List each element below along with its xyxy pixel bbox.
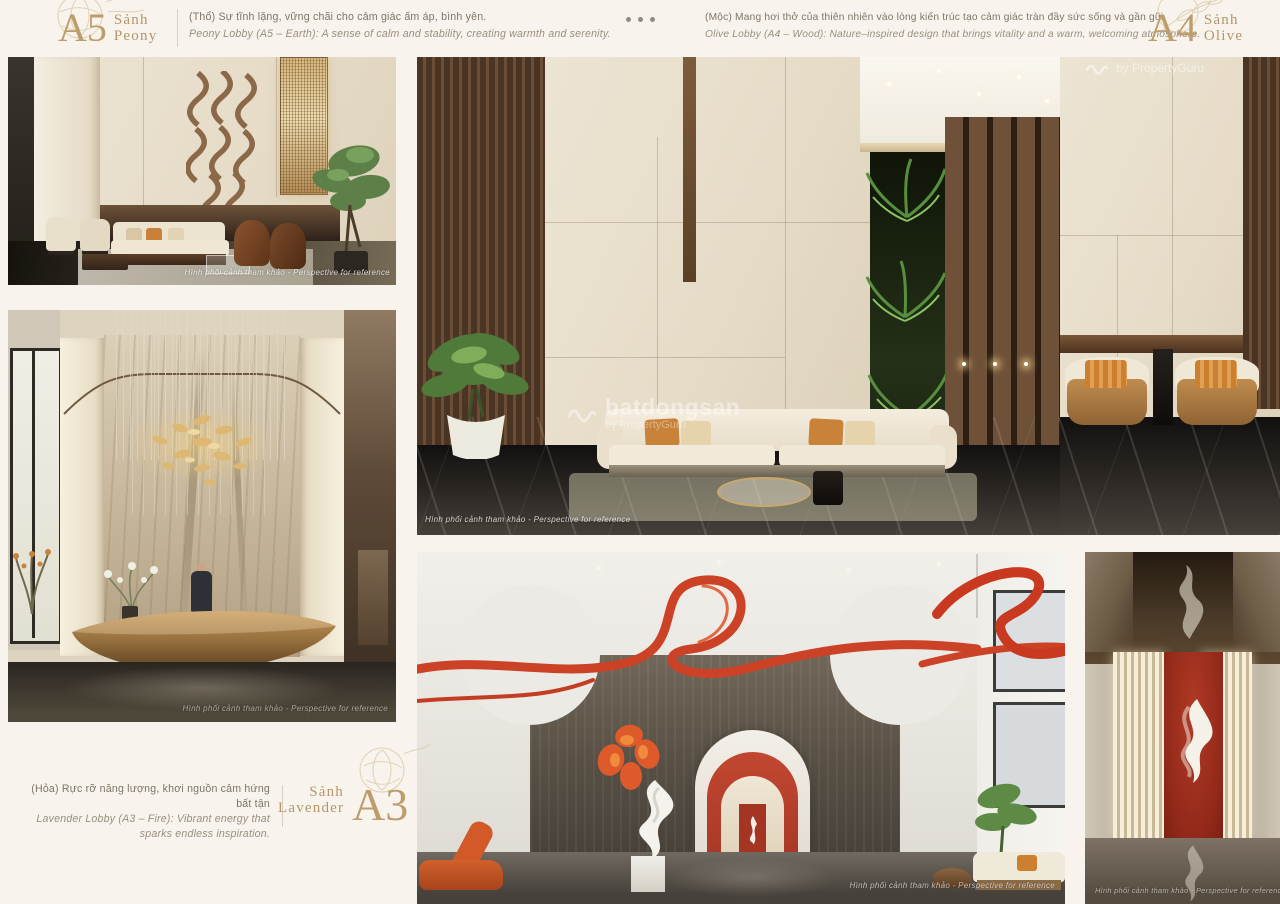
olive-logo-label: Sảnh Olive [1204,12,1243,44]
olive-caption-vi: (Mộc) Mang hơi thở của thiên nhiên vào l… [705,9,1120,26]
ceiling-swirl-reflection [1165,558,1209,644]
red-ribbon-sculpture [417,552,1065,732]
olive-caption-en: Olive Lobby (A4 – Wood): Nature–inspired… [705,26,1120,43]
wood-coffee-table [82,254,128,270]
image-olive-lobby: batdongsan by PropertyGuru by PropertyGu… [417,57,1280,535]
orange-lounge-chair-seat [419,860,503,890]
leather-armchair [234,220,270,266]
corridor-bird-art [743,814,762,846]
olive-logo-name: Olive [1204,28,1243,44]
sofa-base-shadow [609,465,945,477]
lavender-caption: (Hỏa) Rực rỡ năng lượng, khơi nguồn cảm … [30,782,270,842]
white-swirl-art [1169,694,1219,790]
sculpture-pedestal [631,856,665,892]
sofa-pillow [808,418,843,448]
white-sculpture [625,778,683,862]
leather-armchair [270,223,306,269]
floor-reflection [667,858,837,898]
wood-corridor [344,310,396,722]
peony-caption-vi: (Thổ) Sự tĩnh lặng, vững chãi cho cảm gi… [189,9,611,26]
lavender-logo-word: Sảnh [309,784,344,800]
lavender-logo-label: Sảnh Lavender [278,784,344,816]
olive-logo-word: Sảnh [1204,12,1239,28]
fluted-light-column [1113,652,1165,838]
grand-marble-wall [545,57,870,447]
potted-tree [304,135,394,275]
brand-watermark: batdongsan by PropertyGuru [567,395,740,431]
sofa-seat [609,445,775,467]
bronze-accent-strip [683,57,696,282]
image-reference-caption: Hình phối cảnh tham khảo - Perspective f… [185,268,390,278]
image-lavender-art-wall: Hình phối cảnh tham khảo - Perspective f… [1085,552,1280,904]
lavender-logo-code: A3 [352,782,408,828]
peony-logo-name: Peony [114,28,158,44]
page-indicator-dot[interactable] [626,17,631,22]
image-peony-lobby: Hình phối cảnh tham khảo - Perspective f… [8,57,396,285]
olive-logo: A4 Sảnh Olive [1148,8,1243,48]
fan-palm-plant [417,319,537,459]
page-indicator-dot[interactable] [650,17,655,22]
wood-ledge-band [1060,335,1243,353]
far-right-slat-wall [1243,57,1280,409]
corridor-door [358,550,388,645]
wavy-wall-art [186,71,272,207]
olive-caption: (Mộc) Mang hơi thở của thiên nhiên vào l… [705,9,1120,43]
page-indicator-dot[interactable] [638,17,643,22]
header-divider-left [177,9,178,47]
propertyguru-logo-icon [567,402,597,424]
peony-caption: (Thổ) Sự tĩnh lặng, vững chãi cho cảm gi… [189,9,611,43]
brochure-page: A5 Sảnh Peony (Thổ) Sự tĩnh lặng, vững c… [0,0,1280,904]
accent-chair [80,219,110,251]
propertyguru-logo-icon [1085,59,1109,76]
lavender-logo: Sảnh Lavender A3 [278,782,408,828]
window-plant [10,528,54,618]
image-lavender-lobby: Hình phối cảnh tham khảo - Perspective f… [417,552,1065,904]
sofa-pillow [845,421,875,447]
lavender-logo-name: Lavender [278,800,344,816]
gold-coffee-table [717,477,811,507]
armchair-pillow [1085,360,1127,388]
peony-logo-code: A5 [58,8,107,48]
olive-logo-code: A4 [1148,8,1197,48]
watermark-brand-text: batdongsan [605,395,740,419]
ceiling-slab-edge [1233,552,1280,652]
page-indicator [622,9,658,27]
lavender-caption-vi: (Hỏa) Rực rỡ năng lượng, khơi nguồn cảm … [30,782,270,812]
image-reference-caption: Hình phối cảnh tham khảo - Perspective f… [425,515,630,525]
image-reference-caption: Hình phối cảnh tham khảo - Perspective f… [1095,886,1280,896]
armchair-pillow [1195,360,1237,388]
lavender-caption-en: Lavender Lobby (A3 – Fire): Vibrant ener… [30,812,270,842]
watermark-byline-text: by PropertyGuru [605,419,740,431]
corner-watermark-text: by PropertyGuru [1116,61,1204,75]
stone-pedestal-table [1153,349,1173,425]
right-sofa-pillow [1017,855,1037,871]
accent-chair [46,217,76,251]
peony-logo-label: Sảnh Peony [114,12,158,44]
image-reference-caption: Hình phối cảnh tham khảo - Perspective f… [850,881,1055,891]
black-side-table [813,471,843,505]
corner-plant [965,774,1041,860]
peony-caption-en: Peony Lobby (A5 – Earth): A sense of cal… [189,26,611,43]
ceiling-slab-edge [1085,552,1133,652]
image-peony-reception: Hình phối cảnh tham khảo - Perspective f… [8,310,396,722]
sofa-seat [779,445,945,467]
chandelier-leaves [120,402,284,492]
image-reference-caption: Hình phối cảnh tham khảo - Perspective f… [183,704,388,714]
peony-logo-word: Sảnh [114,12,149,28]
peony-logo: A5 Sảnh Peony [58,8,157,48]
corner-watermark: by PropertyGuru [1085,59,1204,76]
